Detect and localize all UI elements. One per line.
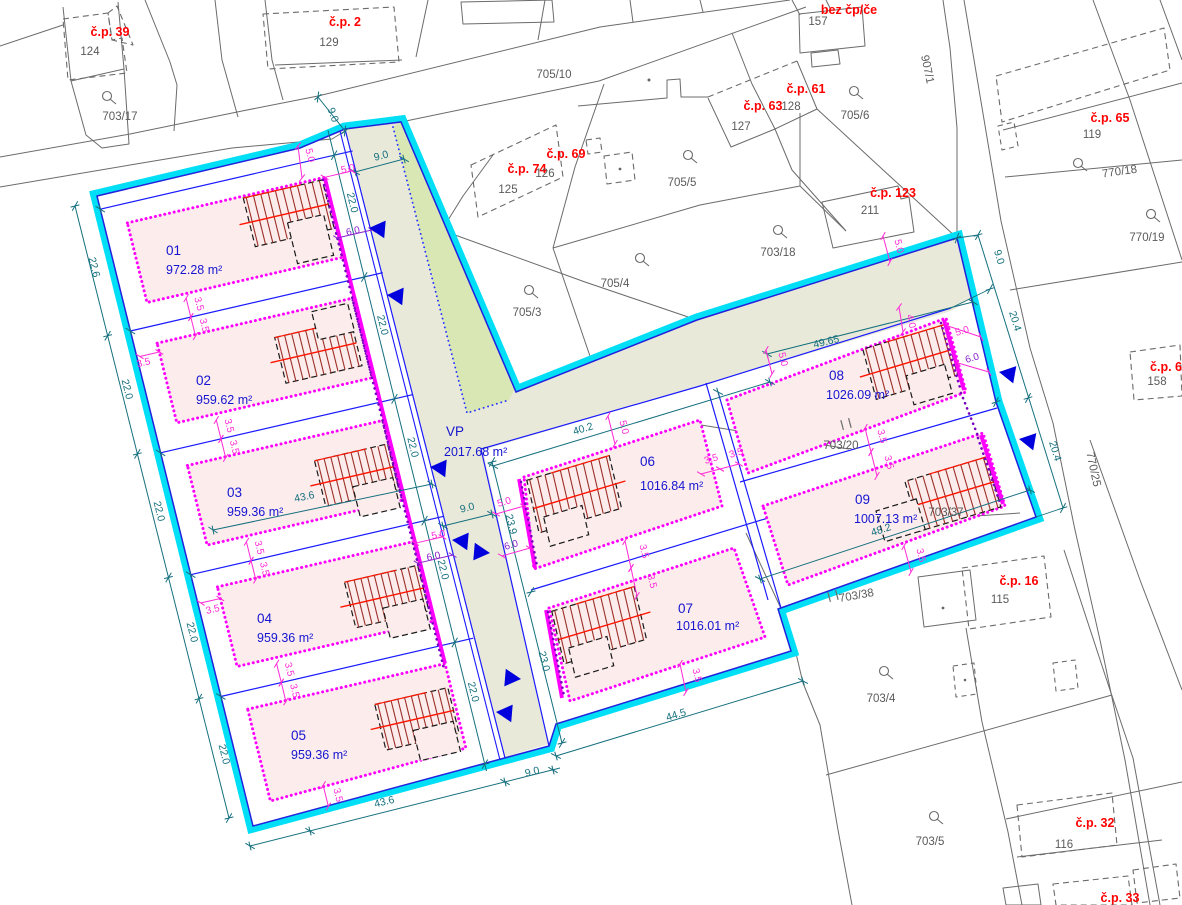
svg-text:č.p. 61: č.p. 61 bbox=[787, 82, 826, 96]
svg-text:705/5: 705/5 bbox=[668, 177, 697, 189]
svg-text:211: 211 bbox=[861, 205, 879, 217]
svg-text:06: 06 bbox=[640, 454, 655, 469]
svg-text:703/5: 703/5 bbox=[916, 836, 945, 848]
svg-text:1016.84 m²: 1016.84 m² bbox=[640, 479, 703, 493]
svg-text:07: 07 bbox=[678, 601, 693, 616]
svg-text:03: 03 bbox=[227, 485, 242, 500]
svg-text:959.36 m²: 959.36 m² bbox=[257, 631, 313, 645]
svg-text:č.p. 65: č.p. 65 bbox=[1091, 111, 1130, 125]
svg-text:09: 09 bbox=[855, 492, 870, 507]
svg-text:05: 05 bbox=[291, 728, 306, 743]
svg-text:705/4: 705/4 bbox=[601, 278, 630, 290]
svg-text:1016.01 m²: 1016.01 m² bbox=[676, 619, 739, 633]
svg-text:705/10: 705/10 bbox=[536, 69, 571, 81]
svg-text:č.p. 39: č.p. 39 bbox=[91, 25, 130, 39]
svg-text:č.p. 69: č.p. 69 bbox=[547, 147, 586, 161]
svg-text:VP: VP bbox=[446, 424, 464, 439]
svg-text:115: 115 bbox=[991, 594, 1009, 606]
svg-text:705/6: 705/6 bbox=[841, 110, 870, 122]
svg-text:972.28 m²: 972.28 m² bbox=[166, 263, 222, 277]
svg-text:703/37: 703/37 bbox=[928, 507, 963, 519]
svg-text:770/19: 770/19 bbox=[1129, 232, 1164, 244]
svg-text:157: 157 bbox=[808, 16, 827, 28]
svg-text:č.p. 63: č.p. 63 bbox=[744, 99, 783, 113]
svg-text:124: 124 bbox=[80, 46, 100, 58]
svg-text:126: 126 bbox=[535, 168, 554, 180]
svg-text:01: 01 bbox=[166, 243, 181, 258]
svg-text:128: 128 bbox=[781, 101, 800, 113]
svg-text:02: 02 bbox=[196, 373, 211, 388]
svg-text:2017.68 m²: 2017.68 m² bbox=[444, 445, 507, 459]
svg-text:158: 158 bbox=[1147, 376, 1166, 388]
svg-text:703/18: 703/18 bbox=[760, 247, 795, 259]
svg-text:127: 127 bbox=[731, 121, 750, 133]
svg-text:č.p. 6: č.p. 6 bbox=[1150, 360, 1182, 374]
svg-text:08: 08 bbox=[829, 368, 844, 383]
svg-text:č.p. 33: č.p. 33 bbox=[1101, 891, 1140, 905]
svg-text:č.p. 32: č.p. 32 bbox=[1076, 816, 1115, 830]
svg-text:703/20: 703/20 bbox=[823, 440, 858, 452]
svg-text:č.p. 123: č.p. 123 bbox=[870, 186, 916, 200]
svg-text:č.p. 2: č.p. 2 bbox=[329, 15, 361, 29]
svg-text:129: 129 bbox=[319, 37, 338, 49]
svg-text:č.p. 16: č.p. 16 bbox=[1000, 574, 1039, 588]
svg-text:705/3: 705/3 bbox=[513, 307, 542, 319]
svg-text:703/4: 703/4 bbox=[867, 693, 896, 705]
svg-text:703/17: 703/17 bbox=[102, 111, 137, 123]
svg-text:1026.09 m²: 1026.09 m² bbox=[826, 388, 889, 402]
svg-text:959.62 m²: 959.62 m² bbox=[196, 393, 252, 407]
svg-text:125: 125 bbox=[498, 184, 517, 196]
svg-text:119: 119 bbox=[1083, 129, 1101, 141]
svg-text:116: 116 bbox=[1055, 839, 1073, 851]
svg-text:959.36 m²: 959.36 m² bbox=[291, 748, 347, 762]
svg-text:bez čp/če: bez čp/če bbox=[821, 3, 877, 17]
svg-text:04: 04 bbox=[257, 611, 273, 626]
